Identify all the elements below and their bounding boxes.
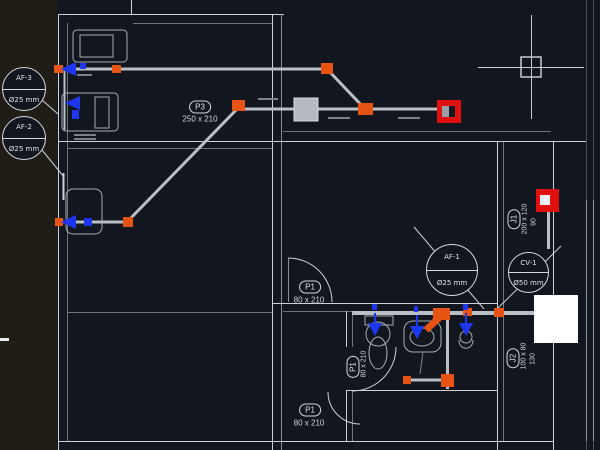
washbasin-drain: [420, 352, 423, 374]
crosshair-cursor: [478, 15, 584, 119]
balloon-af3-size: Ø25 mm: [3, 89, 45, 111]
balloon-cv1-id: CV-1: [509, 253, 548, 272]
valve-arrow-icon[interactable]: [61, 62, 76, 76]
duct-shaft-box[interactable]: [534, 295, 578, 343]
valve-arrow-icon[interactable]: [61, 215, 76, 229]
door-tag-p1-bottom-size: 80 x 210: [294, 419, 325, 428]
balloon-af2-size: Ø25 mm: [3, 138, 45, 160]
tee-fitting[interactable]: [358, 103, 373, 115]
balloon-af2-id: AF-2: [3, 117, 45, 138]
door-tag-p1-bath[interactable]: P1: [347, 356, 360, 378]
door-tag-p3-size: 250 x 210: [182, 115, 217, 124]
cad-drawing-canvas[interactable]: AF-3 Ø25 mm AF-2 Ø25 mm AF-1 Ø25 mm CV-1…: [0, 0, 600, 450]
balloon-af3[interactable]: AF-3 Ø25 mm: [2, 67, 46, 111]
valve-mark: [84, 218, 92, 226]
kitchen-sink[interactable]: [66, 189, 102, 234]
tee-fitting[interactable]: [112, 65, 121, 73]
balloon-af1[interactable]: AF-1 Ø25 mm: [426, 244, 478, 296]
walls-inner-lines[interactable]: [67, 23, 551, 441]
valve-mark: [72, 110, 79, 119]
door-tag-p1-bath-size: 80 x 210: [361, 351, 368, 378]
balloon-af1-id: AF-1: [427, 245, 477, 270]
right-duct-lines[interactable]: [587, 0, 594, 450]
cross-fitting[interactable]: [441, 374, 454, 387]
window-tag-j1-size: 200 x 120: [522, 204, 529, 235]
valve-mark: [372, 304, 377, 310]
appliance-mid[interactable]: [62, 93, 118, 131]
elbow-fitting[interactable]: [123, 217, 133, 227]
toilet-base: [369, 337, 387, 369]
balloon-af3-id: AF-3: [3, 68, 45, 89]
outlet-grille: [442, 106, 449, 117]
balloon-cv1[interactable]: CV-1 Ø50 mm: [508, 252, 549, 293]
end-fitting[interactable]: [403, 376, 411, 384]
balloon-af2[interactable]: AF-2 Ø25 mm: [2, 116, 46, 160]
valve-mark: [463, 304, 468, 310]
tee-fitting[interactable]: [232, 100, 245, 111]
door-tag-p1-living-size: 80 x 210: [294, 296, 325, 305]
selected-outlet-1[interactable]: [437, 100, 461, 123]
window-tag-j2-size: 100 x 80: [521, 343, 528, 370]
pipe-fittings[interactable]: [54, 63, 504, 387]
valves[interactable]: [61, 62, 473, 339]
valve-mark: [80, 63, 86, 69]
window-tag-j1[interactable]: J1: [508, 209, 521, 229]
balloon-cv1-size: Ø50 mm: [509, 272, 548, 292]
door-tag-p1-living[interactable]: P1: [299, 281, 321, 294]
door-tag-p3[interactable]: P3: [189, 101, 211, 114]
inline-fan-unit[interactable]: [294, 98, 318, 121]
balloon-af1-size: Ø25 mm: [427, 270, 477, 296]
tee-fitting[interactable]: [494, 308, 504, 317]
window-tag-j1-sill: 90: [531, 218, 538, 226]
selected-outlet-2[interactable]: [536, 189, 559, 212]
valve-mark: [414, 306, 418, 312]
window-tag-j2[interactable]: J2: [507, 348, 520, 368]
appliance-mid-inner: [95, 97, 109, 128]
door-tag-p1-bottom[interactable]: P1: [299, 404, 321, 417]
plumbing-fixtures[interactable]: [62, 30, 473, 374]
window-tag-j2-sill: 130: [530, 353, 537, 365]
appliance-top-inner: [80, 35, 113, 57]
elbow-fitting[interactable]: [321, 63, 333, 74]
valve-arrow-icon[interactable]: [368, 323, 382, 336]
outlet-grille: [540, 195, 550, 205]
